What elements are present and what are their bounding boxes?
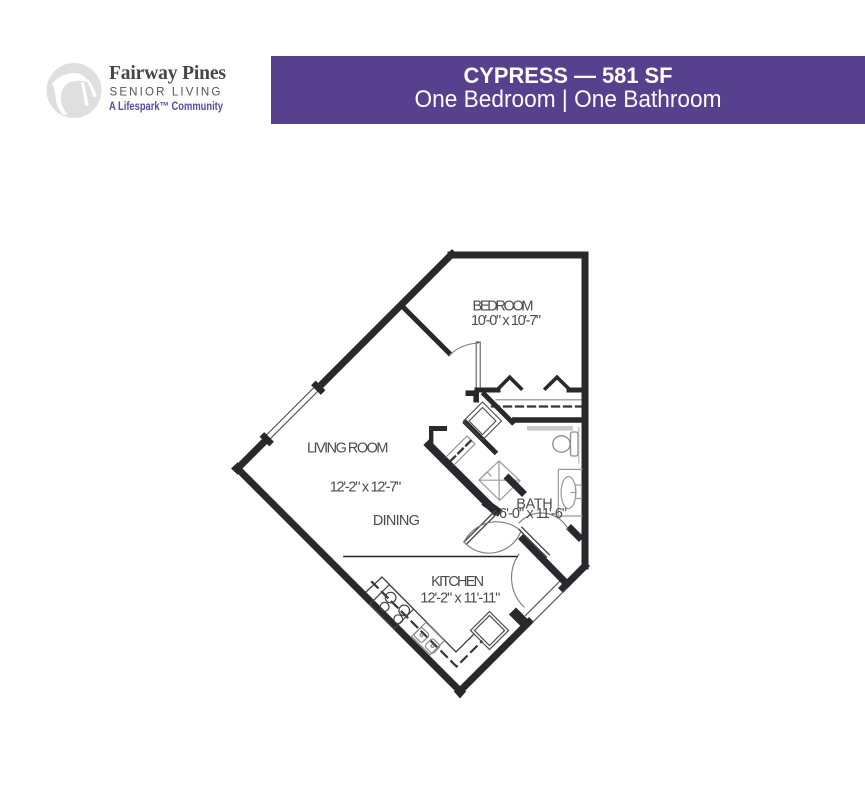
svg-text:LIVING ROOM: LIVING ROOM — [307, 441, 389, 457]
svg-text:A Lifespark™ Community: A Lifespark™ Community — [109, 101, 223, 113]
svg-text:12'-2" x 11'-11": 12'-2" x 11'-11" — [420, 591, 500, 607]
svg-text:6'-0" x 11'-6": 6'-0" x 11'-6" — [499, 506, 567, 522]
svg-text:DINING: DINING — [373, 513, 420, 529]
svg-text:12'-2" x 12'-7": 12'-2" x 12'-7" — [330, 480, 402, 496]
svg-text:10'-0" x 10'-7": 10'-0" x 10'-7" — [471, 313, 541, 329]
svg-text:KITCHEN: KITCHEN — [431, 574, 484, 590]
svg-text:CYPRESS — 581 SF: CYPRESS — 581 SF — [464, 63, 673, 88]
svg-text:SENIOR LIVING: SENIOR LIVING — [110, 85, 223, 99]
svg-text:One Bedroom | One Bathroom: One Bedroom | One Bathroom — [415, 86, 722, 113]
svg-text:Fairway Pines: Fairway Pines — [109, 63, 226, 84]
